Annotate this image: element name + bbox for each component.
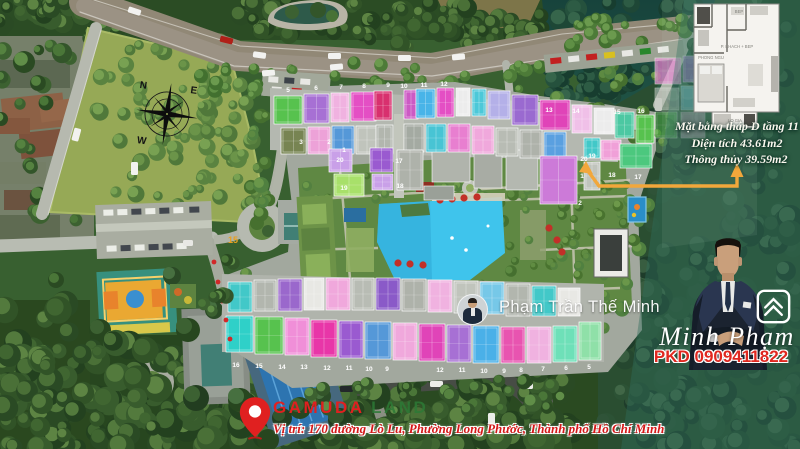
svg-text:7: 7 [339,84,343,91]
svg-text:1: 1 [342,147,346,154]
svg-text:13: 13 [300,364,308,371]
svg-text:2: 2 [327,139,331,146]
svg-text:6: 6 [564,365,568,372]
svg-text:17: 17 [395,158,403,165]
svg-text:7: 7 [541,366,545,373]
svg-text:1: 1 [580,173,584,180]
svg-text:9: 9 [502,368,506,375]
svg-text:PHONG NGU: PHONG NGU [698,55,724,60]
svg-text:18: 18 [396,183,404,190]
svg-text:10: 10 [365,366,373,373]
svg-text:8: 8 [519,367,523,374]
svg-text:14: 14 [572,108,580,115]
svg-text:12: 12 [436,367,444,374]
svg-text:11: 11 [421,82,428,89]
svg-text:12: 12 [323,365,331,372]
svg-text:14: 14 [278,364,286,371]
svg-text:11: 11 [459,367,466,374]
svg-text:15: 15 [228,235,238,245]
svg-text:3: 3 [299,139,303,146]
svg-text:2: 2 [578,200,582,207]
svg-text:19: 19 [588,153,596,160]
svg-text:N: N [139,80,148,92]
svg-text:20: 20 [336,157,344,164]
svg-text:20: 20 [580,156,588,163]
svg-text:12: 12 [440,81,448,88]
svg-text:5: 5 [286,87,290,94]
svg-text:17: 17 [634,174,642,181]
svg-text:10: 10 [400,83,408,90]
svg-text:19: 19 [340,185,348,192]
svg-text:P. KHACH + BEP: P. KHACH + BEP [721,44,754,49]
svg-text:5: 5 [587,364,591,371]
svg-text:9: 9 [386,82,390,89]
svg-text:13: 13 [545,107,553,114]
svg-text:15: 15 [255,363,263,370]
svg-text:16: 16 [637,108,645,115]
svg-text:10: 10 [480,368,488,375]
svg-text:16: 16 [232,362,240,369]
svg-text:15: 15 [613,109,621,116]
svg-text:11: 11 [346,365,353,372]
svg-text:BEP: BEP [735,9,744,14]
svg-text:18: 18 [608,172,616,179]
svg-text:9: 9 [385,366,389,373]
svg-text:6: 6 [314,85,318,92]
svg-text:8: 8 [362,83,366,90]
